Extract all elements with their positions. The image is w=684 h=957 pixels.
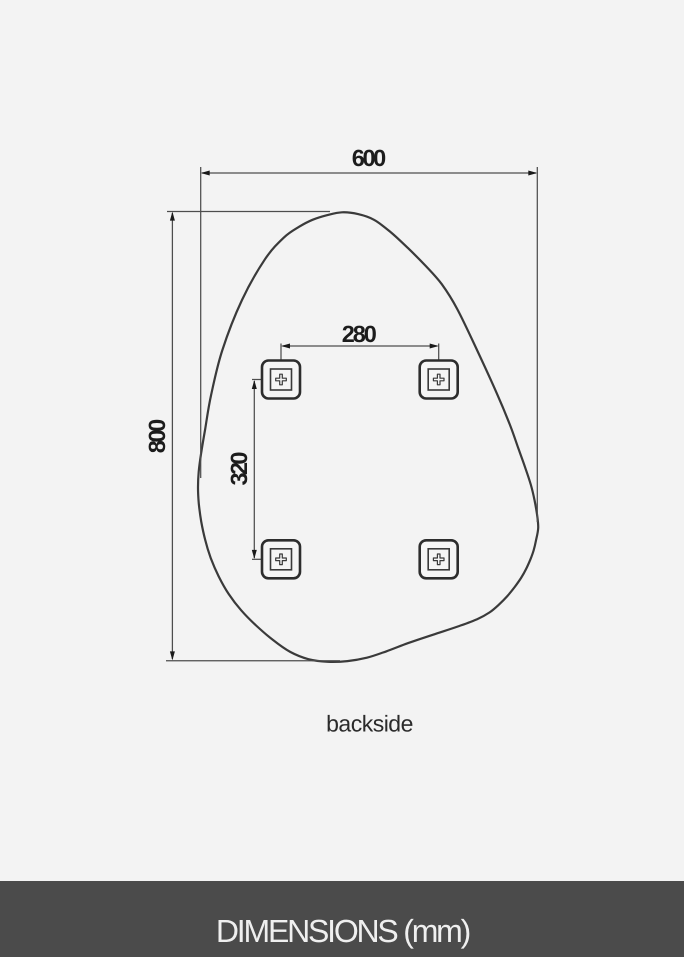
svg-text:DIMENSIONS (mm): DIMENSIONS (mm) [216,913,470,949]
svg-text:backside: backside [326,711,413,737]
svg-text:280: 280 [342,321,377,347]
svg-text:320: 320 [226,452,252,486]
svg-text:800: 800 [144,419,170,454]
svg-text:600: 600 [352,145,387,171]
